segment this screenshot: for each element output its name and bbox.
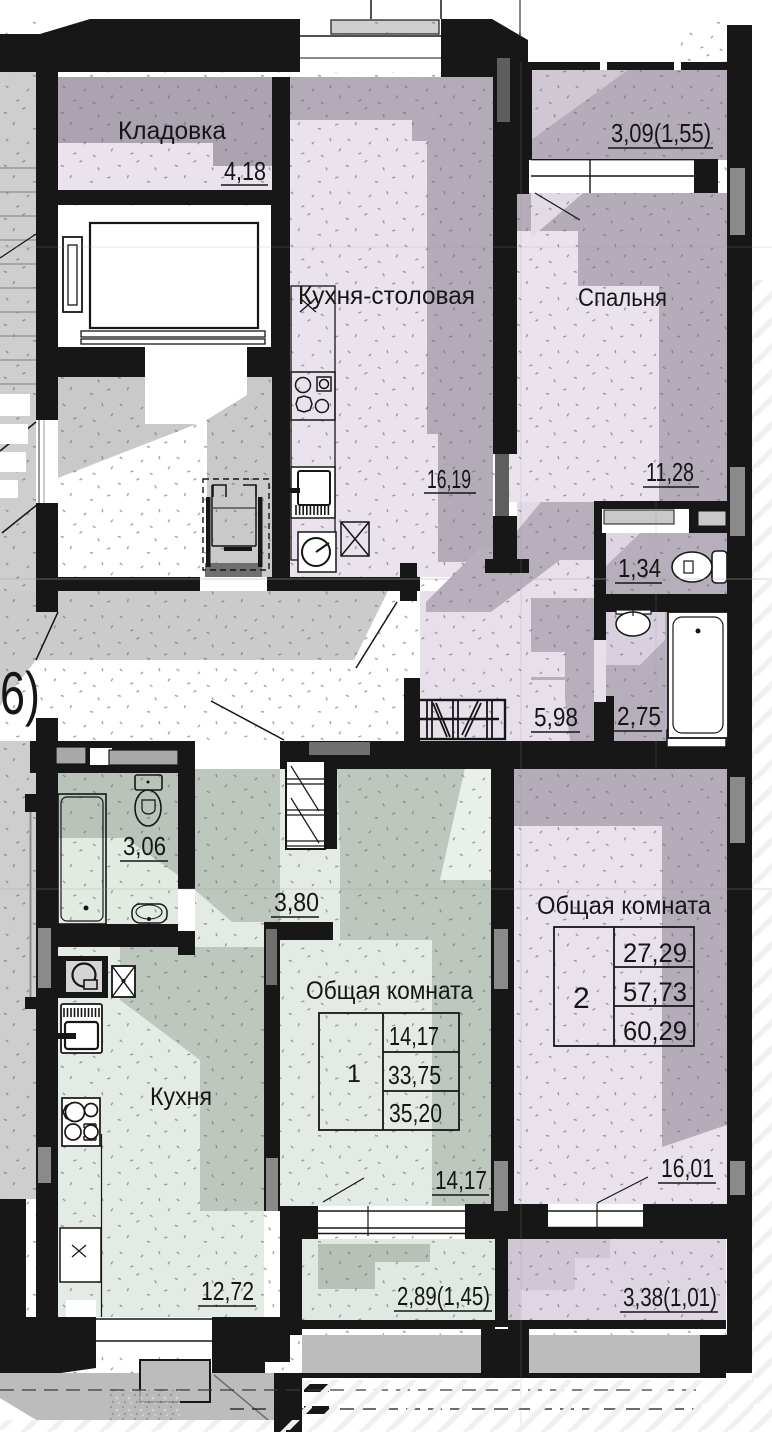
svg-text:Кухня-столовая: Кухня-столовая bbox=[298, 282, 475, 310]
svg-text:16,19: 16,19 bbox=[427, 464, 471, 494]
svg-text:2: 2 bbox=[573, 982, 590, 1015]
svg-text:3,80: 3,80 bbox=[274, 887, 319, 917]
svg-text:3,09(1,55): 3,09(1,55) bbox=[611, 118, 711, 148]
svg-text:16,01: 16,01 bbox=[661, 1153, 714, 1183]
svg-text:12,72: 12,72 bbox=[201, 1276, 254, 1306]
svg-text:5,98: 5,98 bbox=[534, 702, 578, 732]
svg-text:27,29: 27,29 bbox=[623, 938, 687, 968]
svg-text:1,34: 1,34 bbox=[618, 553, 661, 583]
svg-text:2,75: 2,75 bbox=[617, 701, 661, 731]
svg-text:14,17: 14,17 bbox=[389, 1021, 439, 1051]
svg-text:60,29: 60,29 bbox=[623, 1016, 687, 1046]
svg-text:35,20: 35,20 bbox=[389, 1098, 442, 1128]
svg-text:Спальня: Спальня bbox=[578, 284, 667, 312]
svg-text:3,06: 3,06 bbox=[123, 831, 166, 861]
svg-text:11,28: 11,28 bbox=[646, 457, 694, 487]
svg-text:57,73: 57,73 bbox=[623, 977, 687, 1007]
svg-text:Общая комната: Общая комната bbox=[537, 892, 711, 920]
svg-text:4,18: 4,18 bbox=[224, 156, 266, 186]
svg-text:2,89(1,45): 2,89(1,45) bbox=[397, 1281, 490, 1311]
svg-text:6): 6) bbox=[0, 660, 40, 727]
svg-text:Кухня: Кухня bbox=[150, 1083, 212, 1111]
svg-text:1: 1 bbox=[347, 1060, 361, 1088]
svg-text:3,38(1,01): 3,38(1,01) bbox=[623, 1282, 717, 1312]
svg-text:14,17: 14,17 bbox=[435, 1165, 487, 1195]
svg-text:Общая комната: Общая комната bbox=[306, 977, 473, 1005]
svg-text:33,75: 33,75 bbox=[388, 1060, 441, 1090]
svg-text:Кладовка: Кладовка bbox=[118, 117, 226, 145]
